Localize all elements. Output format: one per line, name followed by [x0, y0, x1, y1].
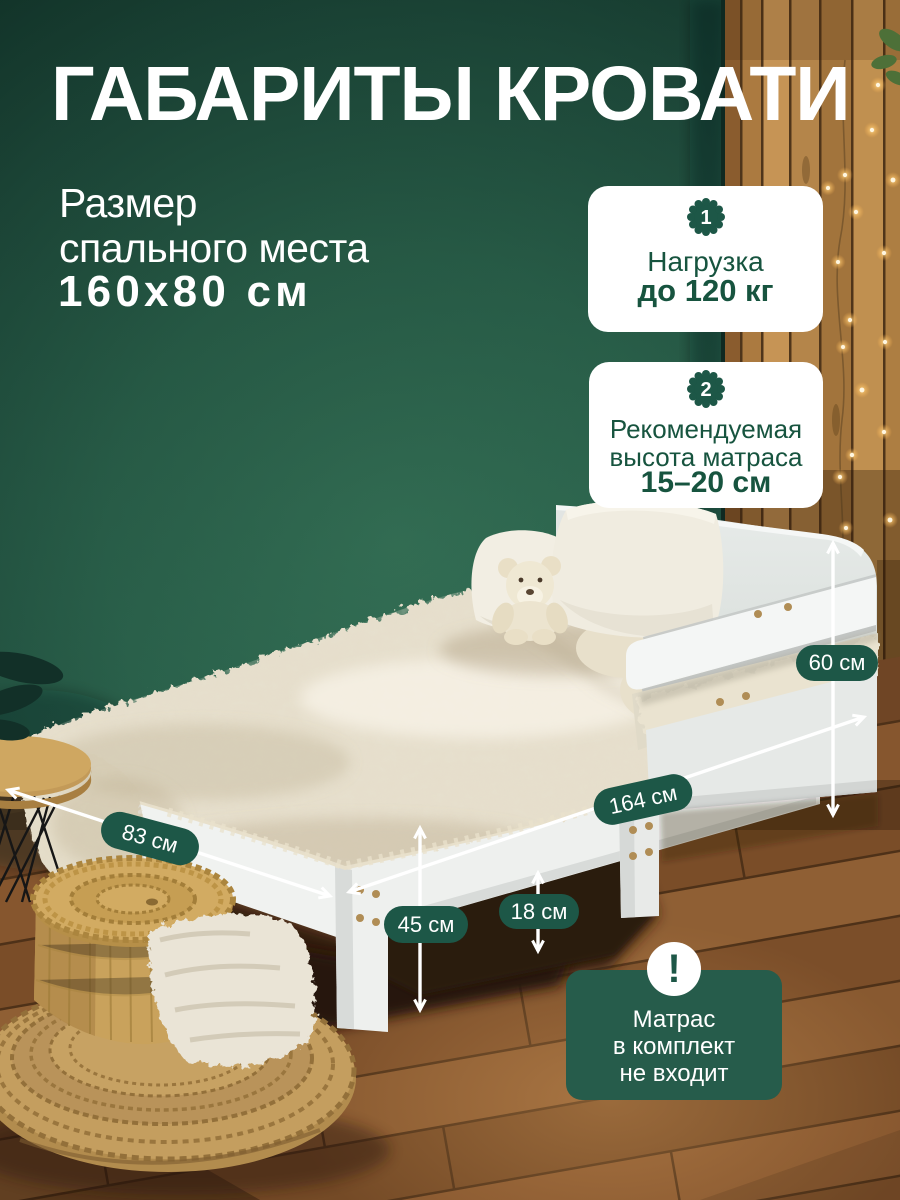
svg-text:1: 1	[700, 207, 711, 229]
svg-text:2: 2	[700, 379, 711, 401]
